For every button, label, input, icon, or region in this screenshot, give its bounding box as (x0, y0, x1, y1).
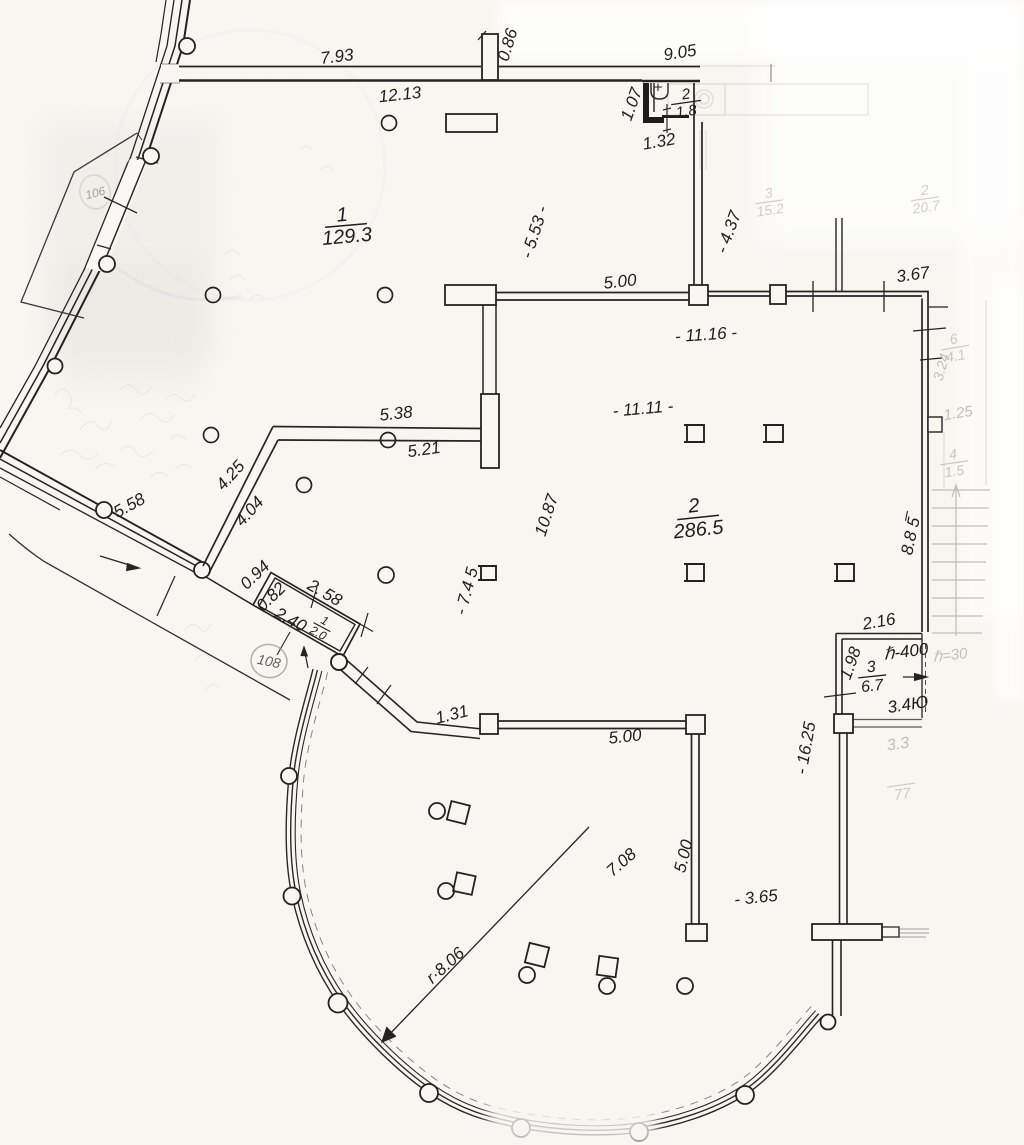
svg-text:1.8: 1.8 (675, 102, 699, 122)
svg-text:3.3: 3.3 (886, 735, 910, 755)
svg-text:5.38: 5.38 (378, 402, 413, 424)
svg-text:1.5: 1.5 (943, 462, 965, 481)
svg-text:6.7: 6.7 (860, 677, 885, 696)
svg-text:3: 3 (866, 659, 877, 677)
svg-text:2: 2 (686, 495, 700, 518)
svg-text:129.3: 129.3 (321, 224, 373, 250)
svg-text:5.00: 5.00 (607, 725, 642, 747)
svg-text:1: 1 (336, 204, 349, 227)
svg-text:7.93: 7.93 (319, 45, 355, 68)
svg-text:77: 77 (893, 785, 913, 804)
svg-text:5.00: 5.00 (602, 270, 637, 292)
